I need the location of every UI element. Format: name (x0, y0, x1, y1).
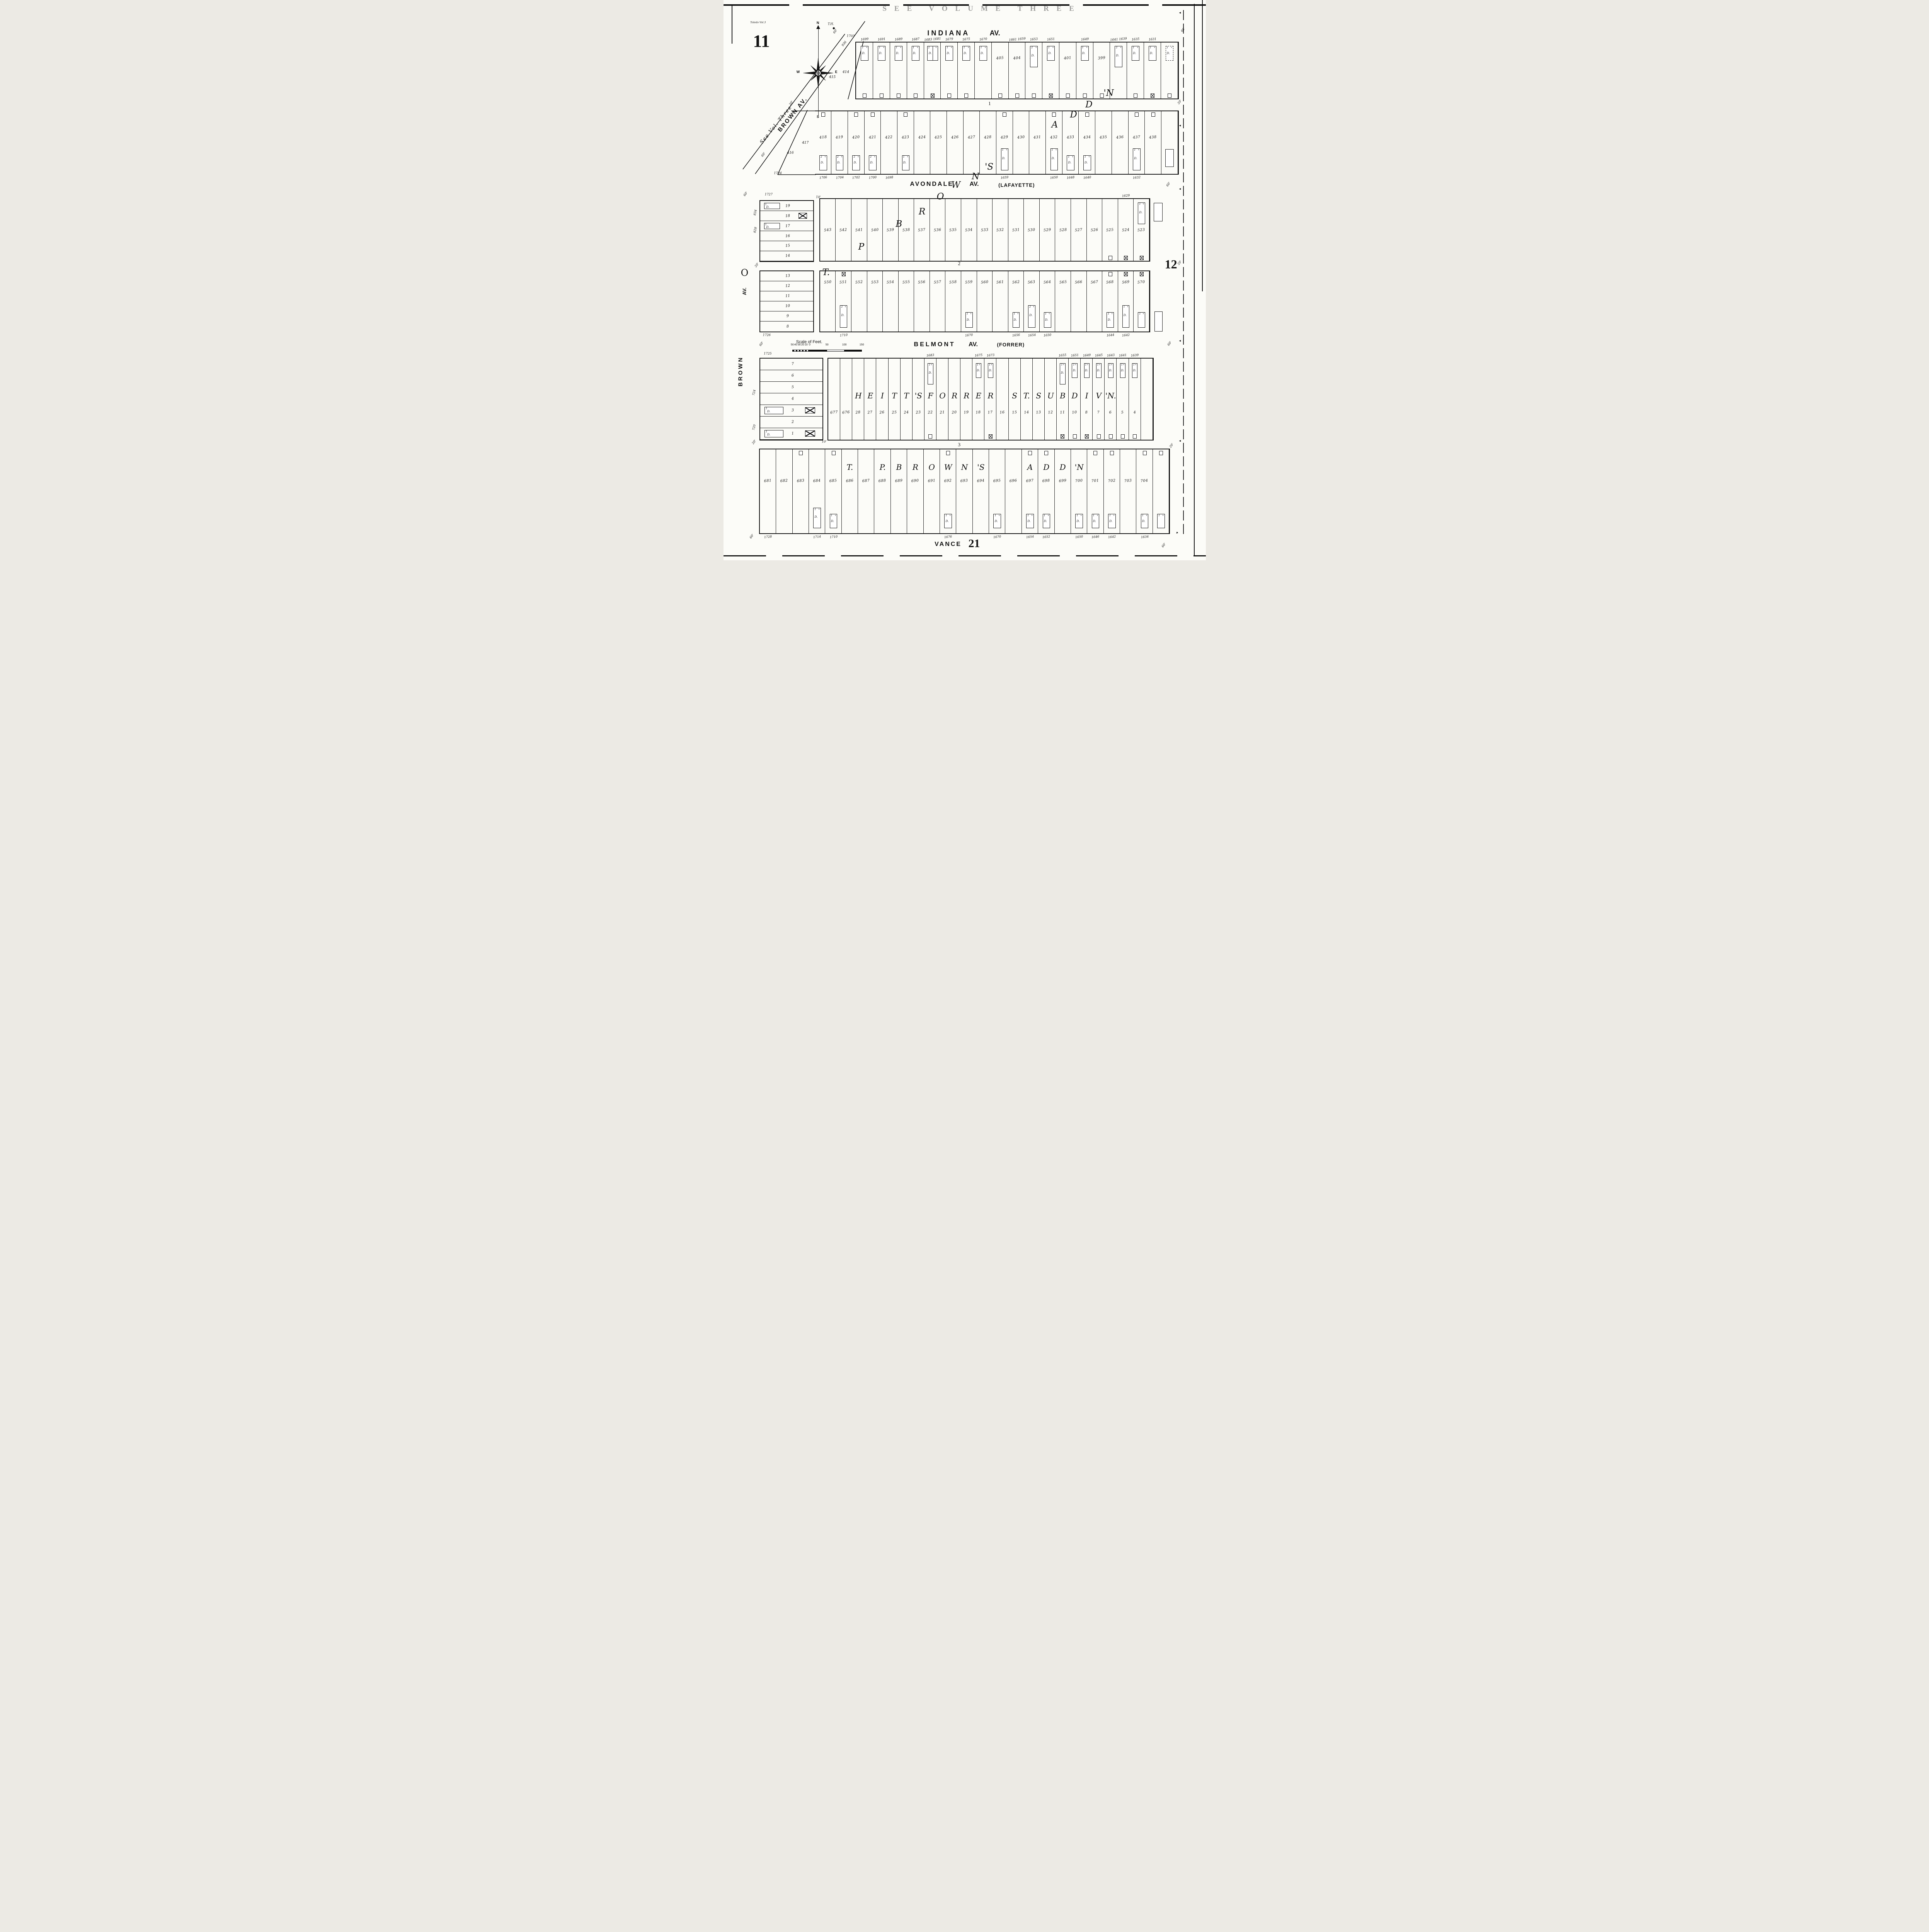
outbuilding-icon (799, 451, 803, 455)
x-symbol: x (1081, 514, 1082, 517)
lot: 5 (760, 382, 822, 393)
lot: 529 (1040, 199, 1056, 261)
lot-number: 686 (841, 478, 858, 484)
storey-count: 1 (913, 46, 914, 49)
lot-number: 676 (840, 410, 852, 415)
lot: 16 (760, 231, 813, 241)
annotation: 414 (843, 70, 849, 74)
house-number: 1642 (1122, 333, 1130, 337)
x-symbol: x (1135, 364, 1136, 366)
outbuilding-icon (1052, 112, 1056, 117)
annotation: 828 (753, 226, 758, 233)
subdivision-ghost-letter: F (928, 391, 933, 400)
dwelling-label: D. (1124, 313, 1127, 317)
dwelling-label: D. (862, 51, 865, 55)
lot-number: 13 (785, 274, 790, 278)
ghost-volume-header: SEE VOLUME THREE (882, 5, 1082, 13)
x-symbol: x (825, 156, 826, 158)
lot: 16 (996, 359, 1008, 440)
subdivision-ghost-letter: T (904, 391, 909, 400)
x-symbol: x (1154, 46, 1155, 49)
ghost-letter: T. (822, 267, 830, 277)
dwelling: D.1x (1149, 46, 1156, 61)
subdivision-ghost-letter: 'S (977, 463, 984, 472)
x-symbol: x (1163, 514, 1164, 517)
annotation: 60' (1167, 340, 1173, 346)
lot: 565 (1056, 271, 1071, 332)
margin-line-right (1183, 10, 1183, 537)
storey-count: 2 (928, 46, 930, 49)
storey-count: 1 (1133, 46, 1134, 49)
lot-number: 431 (1029, 134, 1045, 140)
dwelling-label: D. (1027, 519, 1030, 523)
lot-number: 525 (1102, 227, 1118, 233)
lot: 687 (858, 449, 874, 533)
outbuilding-icon (1109, 434, 1113, 439)
x-symbol: x (970, 313, 972, 315)
house-number: 1656 (1012, 333, 1020, 337)
house-number: 1683 1681 (924, 37, 941, 42)
storey-count: 1 (1076, 514, 1078, 517)
lot-number: 423 (897, 134, 914, 140)
dwelling-label: D. (967, 318, 970, 321)
lot-number: 15 (1008, 410, 1020, 415)
house-number: 1646 (1091, 535, 1100, 539)
lot: 424 (914, 111, 931, 174)
x-symbol: x (968, 46, 969, 49)
lot-number: 434 (1079, 134, 1095, 140)
outbuilding-icon (897, 94, 901, 98)
house-number: 1654 (1026, 535, 1034, 539)
storey-count: 1 (1045, 313, 1047, 315)
scale-tick-label: 20 (801, 344, 804, 346)
outbuilding-icon (821, 112, 825, 117)
lot: 436 (1112, 111, 1129, 174)
ghost-letter: O (937, 192, 944, 202)
x-symbol: x (1146, 514, 1147, 517)
lot-number: 542 (836, 227, 851, 233)
lot-number: 691 (923, 478, 940, 484)
lot: 430 (1013, 111, 1030, 174)
lot-number: 432 (1046, 134, 1062, 140)
subdivision-ghost-letter: T. (1023, 391, 1030, 400)
subdivision-ghost-letter: O (929, 463, 935, 472)
scale-bar (792, 350, 862, 352)
lot: 401 (1059, 43, 1076, 99)
dwelling: D.1x (861, 46, 868, 61)
lot: 530 (1024, 199, 1040, 261)
block-row-heitts-subdivision: 6776762827262524232221201918171615141312… (827, 358, 1154, 440)
dwelling-label: D. (841, 313, 844, 317)
lot-number: 18 (972, 410, 984, 415)
storey-count: 1 (1167, 46, 1168, 49)
lot-number: 9 (787, 314, 789, 318)
lot: 552 (851, 271, 867, 332)
outbuilding-icon (1151, 112, 1155, 117)
party-wall (933, 46, 933, 60)
lot: 12 (760, 281, 813, 291)
dwelling: D.1x (1067, 155, 1074, 170)
storey-count: 2 (870, 156, 872, 158)
dwelling: D.1x (1092, 514, 1099, 528)
street-avondale-alt: (LAFAYETTE) (998, 182, 1035, 188)
dwelling: D.1x (945, 46, 953, 61)
annotation: ▲ (1179, 124, 1182, 126)
lot: 526 (1087, 199, 1103, 261)
x-symbol: x (1072, 156, 1073, 158)
house-number: 1632 (1132, 176, 1141, 180)
annotation: 60' (1166, 181, 1171, 187)
lot-number: 405 (991, 55, 1008, 61)
subdivision-ghost-letter: 'N. (1105, 391, 1116, 400)
subdivision-ghost-letter: V (1096, 391, 1102, 400)
house-number: 1670 (993, 535, 1001, 539)
lot: 557 (930, 271, 946, 332)
subdivision-ghost-letter: T. (846, 463, 853, 472)
annotation: 1727 (765, 193, 773, 196)
dwelling: D.1x (962, 46, 970, 61)
x-symbol: x (1086, 46, 1088, 49)
lot: 542 (836, 199, 851, 261)
lot: 7 (760, 359, 822, 370)
dwelling: D.1x (1013, 312, 1020, 328)
house-number: 1645 (1095, 353, 1103, 357)
subdivision-ghost-letter: B (896, 463, 902, 472)
lot-number: 550 (820, 279, 835, 285)
lot: 14 (760, 251, 813, 261)
lot-number: 677 (828, 410, 840, 415)
outbuilding-icon (854, 112, 858, 117)
lot-number: 557 (930, 279, 945, 285)
outbuilding-icon (1100, 94, 1104, 98)
dwelling-label: D. (1014, 318, 1017, 321)
dwelling-label: D. (1073, 369, 1076, 372)
lot-number: 695 (989, 478, 1005, 484)
dwelling: D.1 (764, 223, 780, 229)
lot: 535 (945, 199, 961, 261)
subdivision-ghost-letter: W (944, 463, 952, 472)
compass-north-label: N (817, 21, 819, 25)
storey-count: 1 (1093, 514, 1095, 517)
dwelling-label: D. (879, 51, 882, 55)
lot-number: 19 (785, 204, 790, 208)
house-number: 1650 (1044, 333, 1052, 337)
x-symbol: x (1056, 149, 1057, 151)
dwelling-label: D. (821, 161, 824, 164)
lot: 696 (1005, 449, 1022, 533)
lot: 11 (760, 291, 813, 301)
street-left-av: AV. (742, 287, 747, 295)
annotation: 20' (751, 439, 757, 445)
frame-left (732, 5, 732, 44)
lot: 13 (760, 271, 813, 281)
lot-number: 689 (890, 478, 907, 484)
annotation: 20' (754, 262, 759, 268)
x-symbol: x (931, 364, 932, 366)
dwelling: D.1x (902, 155, 910, 170)
house-number: 1654 (1028, 333, 1036, 337)
dwelling-label: D. (929, 371, 932, 374)
subdivision-ghost-letter: D (1072, 391, 1078, 400)
alley-1: 1 (988, 100, 991, 107)
lot-number: 681 (759, 478, 776, 484)
x-symbol: x (950, 514, 951, 517)
street-avondale-av: AV. (969, 181, 979, 188)
outbuilding-icon (880, 94, 884, 98)
street-belmont-av: AV. (969, 341, 978, 348)
scale-tick-label: 50 (826, 344, 829, 346)
lot-number: 685 (825, 478, 841, 484)
x-symbol: x (1127, 306, 1128, 308)
lot-number: 696 (1005, 478, 1022, 484)
lot-number: 565 (1055, 279, 1071, 285)
house-number: 1683 (926, 353, 935, 357)
annotation: 10' (816, 196, 821, 199)
house-number: 1675 (962, 37, 970, 41)
scale-bar-fine (793, 350, 810, 351)
frame-right-outer (1202, 0, 1203, 291)
x-symbol: x (845, 306, 846, 308)
house-number: 1699 (861, 37, 869, 41)
dwelling: D.1x (965, 312, 973, 328)
street-brown-vertical: BROWN (737, 356, 744, 386)
storey-count: 1 (1044, 514, 1045, 517)
lot-number: 693 (956, 478, 972, 484)
lot-number: 5 (791, 385, 794, 389)
dwelling-label: D. (1048, 51, 1051, 55)
outbuilding-icon (863, 94, 867, 98)
dwelling-label: D. (831, 519, 834, 523)
building (1154, 203, 1163, 221)
outbuilding-icon (1134, 94, 1137, 98)
annotation: 415 (829, 75, 836, 79)
lot: 438 (1145, 111, 1161, 174)
stable-icon (799, 213, 807, 218)
block-number-21: 21 (968, 537, 980, 550)
lot-number: 8 (1081, 410, 1093, 415)
lot: 531 (1008, 199, 1024, 261)
lot-number: 436 (1112, 134, 1128, 140)
subdivision-ghost-letter: 'S (915, 391, 922, 400)
dwelling: D.1x (1133, 148, 1141, 170)
x-symbol: x (917, 46, 918, 49)
lot-number: 531 (1008, 227, 1023, 233)
subdivision-ghost-letter: T (892, 391, 897, 400)
house-number: 1634 (1141, 535, 1149, 539)
annotation: 60' (1161, 542, 1167, 548)
lot-number: 426 (947, 134, 963, 140)
subdivision-ghost-letter: I (1085, 391, 1088, 400)
lot-number: 541 (851, 227, 867, 233)
storey-count: 1 (1139, 203, 1141, 206)
annotation: 20' (1177, 99, 1183, 105)
ghost-letter: A (1052, 120, 1058, 130)
lot: 676 (840, 359, 852, 440)
stable-icon (1124, 256, 1128, 260)
outbuilding-icon (1044, 451, 1048, 455)
storey-count: 1 (1082, 46, 1084, 49)
lot-number: 536 (930, 227, 945, 233)
frame-bottom (724, 555, 1206, 557)
lot-number: 543 (820, 227, 835, 233)
lot-number: 2 (791, 420, 794, 424)
outbuilding-icon (832, 451, 836, 455)
x-symbol: x (1123, 364, 1124, 366)
storey-count: 2 (853, 156, 855, 158)
dwelling-label: D. (947, 51, 950, 55)
house-number: 1714 (813, 535, 821, 539)
subdivision-ghost-letter: I (881, 391, 884, 400)
lot: 525 (1102, 199, 1118, 261)
lot-number: 15 (785, 243, 790, 248)
storey-count: 1 (1139, 313, 1141, 315)
lot: 683 (793, 449, 809, 533)
house-number: 1670 (979, 37, 987, 41)
stable-icon (1140, 256, 1144, 260)
scale-tick-label: 150 (860, 344, 864, 346)
dwelling-label: D. (767, 410, 770, 413)
lot-number: 27 (864, 410, 876, 415)
lot: 560 (977, 271, 993, 332)
lot: 556 (914, 271, 930, 332)
outbuilding-icon (928, 434, 932, 439)
outbuilding-icon (871, 112, 875, 117)
lot-number: 523 (1134, 227, 1149, 233)
lot-number: 17 (984, 410, 996, 415)
scale-tick-label: 0 (809, 344, 810, 346)
outbuilding-icon (1108, 256, 1112, 260)
house-number: 1651 (1047, 37, 1055, 41)
dwelling: D.1x (1122, 305, 1130, 328)
dwelling-label: D. (814, 515, 817, 519)
storey-count: 1 (1027, 514, 1029, 517)
x-symbol: x (1017, 313, 1018, 315)
dwelling-label: D. (1061, 371, 1064, 374)
storey-count: 2 (1031, 46, 1033, 49)
storey-count: 1 (947, 46, 948, 49)
lot-number: 704 (1136, 478, 1153, 484)
subdivision-ghost-letter: R (964, 391, 969, 400)
lot-number: 24 (900, 410, 912, 415)
dwelling: D.1x (1060, 363, 1065, 384)
dwelling-label: D. (903, 161, 906, 164)
annotation: 1703 (847, 34, 855, 37)
lot: 555 (899, 271, 914, 332)
house-number: 1676 (944, 535, 952, 539)
lot-number: 404 (1008, 55, 1025, 61)
lot-number: 22 (924, 410, 936, 415)
dwelling: D.1x (1132, 46, 1139, 61)
annotation: ● (833, 27, 835, 30)
outbuilding-icon (1032, 94, 1036, 98)
dwelling: D.2x (852, 155, 860, 170)
lot-number: 697 (1022, 478, 1038, 484)
lot-number: 11 (785, 294, 790, 298)
dwelling: D.1x (1026, 514, 1033, 528)
building (1165, 149, 1174, 167)
dwelling-label: D. (1167, 51, 1170, 55)
outbuilding-icon (1028, 451, 1032, 455)
dwelling: D.1x (1001, 148, 1009, 170)
house-number: 1700 (868, 176, 877, 180)
x-symbol: x (1171, 46, 1172, 49)
street-indiana-av: AV. (990, 29, 1000, 37)
annotation: 20' (1169, 442, 1175, 448)
lot-number: 700 (1071, 478, 1087, 484)
house-number: 1650 (1075, 535, 1083, 539)
subdivision-ghost-letter: R (913, 463, 918, 472)
lot-number: 437 (1128, 134, 1144, 140)
x-symbol: x (1035, 46, 1037, 49)
x-symbol: x (985, 46, 986, 49)
block-row-avondale-south: 5435425415405395385375365355345335325315… (819, 198, 1150, 262)
storey-count: 1 (1142, 514, 1144, 517)
lot-number: 528 (1055, 227, 1071, 233)
outbuilding-icon (1108, 272, 1112, 276)
dwelling-label: D. (1139, 211, 1142, 214)
lot-number: 701 (1087, 478, 1103, 484)
house-number: 1673 (986, 353, 994, 357)
block-row-browns-addition: 6816826836846856866876886896906916926936… (759, 449, 1170, 534)
storey-count: 1 (1073, 364, 1074, 366)
x-symbol: x (1143, 203, 1144, 205)
storey-count: 1 (1002, 149, 1004, 151)
lot-number: 26 (876, 410, 888, 415)
annotation: 1725 (764, 352, 771, 355)
lot (1141, 359, 1153, 440)
lot-number: 23 (912, 410, 924, 415)
dwelling-label: D. (1134, 156, 1137, 160)
lot-number: 17 (785, 224, 790, 228)
dwelling-label: D. (989, 369, 992, 372)
storey-count: 2 (1029, 306, 1031, 308)
dwelling-label: D. (1076, 519, 1079, 523)
lot: 2 (760, 417, 822, 428)
house-number: 1710 (839, 333, 848, 337)
stable-icon (1140, 272, 1144, 276)
lot-number: 684 (809, 478, 825, 484)
annotation: S (792, 112, 794, 115)
lot-number: 527 (1071, 227, 1086, 233)
dwelling-label: D. (1044, 519, 1047, 523)
stable-icon (1124, 272, 1128, 276)
lot: 15 (760, 241, 813, 251)
house-number: 1655 (1059, 353, 1067, 357)
lot: 703 (1120, 449, 1136, 533)
lot: 4 (760, 393, 822, 405)
x-symbol: x (907, 156, 908, 158)
lot-number: 6 (791, 374, 794, 378)
dwelling-label: D. (1109, 369, 1112, 372)
dwelling-label: D. (1085, 369, 1088, 372)
house-number: 1649 (1083, 353, 1091, 357)
lot-column-belmont-south-west: 7654321D.1D.1 (759, 358, 823, 440)
stable-icon (1049, 94, 1053, 98)
street-indiana: INDIANA (927, 29, 970, 37)
house-number: 1652 (1042, 535, 1050, 539)
x-symbol: x (991, 364, 992, 366)
map-sheet: SEE VOLUME THREE Toledo Vol.3 11 12 21 I… (724, 0, 1206, 560)
x-symbol: x (1097, 514, 1098, 517)
storey-count: 1 (1109, 514, 1111, 517)
house-number: 1635 (1132, 37, 1140, 41)
lot: 550 (820, 271, 836, 332)
dwelling-label: D. (1150, 51, 1153, 55)
dwelling: D.1 (764, 430, 783, 437)
annotation: ▲ (1179, 188, 1182, 190)
lot-number: 3 (791, 408, 794, 412)
dwelling: D.1x (830, 514, 837, 528)
